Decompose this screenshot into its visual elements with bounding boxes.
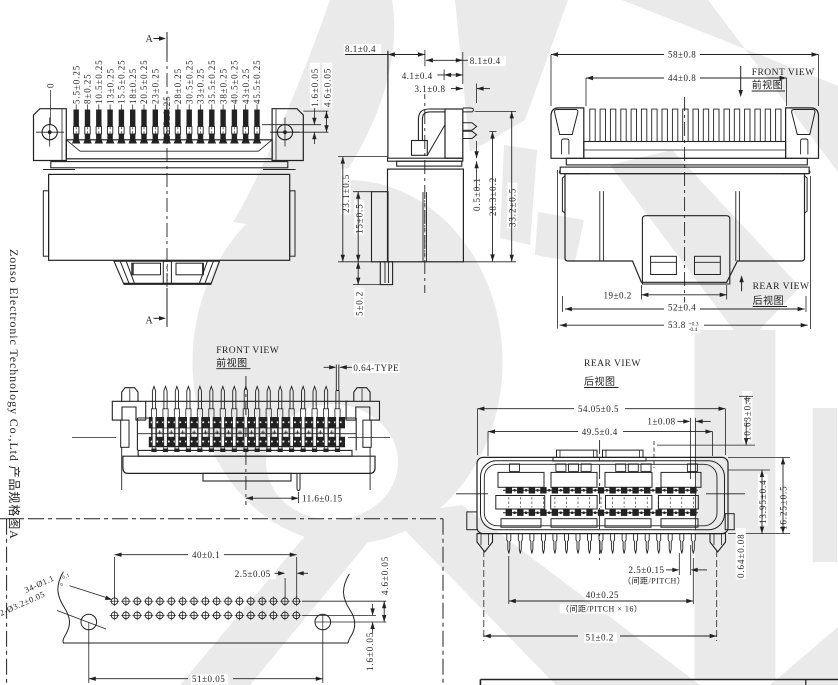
svg-text:40±0.1: 40±0.1 [192, 550, 220, 560]
svg-text:A: A [146, 316, 154, 327]
svg-text:43±0.25: 43±0.25 [241, 68, 251, 104]
svg-text:后视图: 后视图 [753, 294, 785, 307]
svg-text:16.25±0.5: 16.25±0.5 [779, 485, 789, 530]
svg-text:2.5±0.05: 2.5±0.05 [235, 569, 271, 579]
svg-text:35.5±0.25: 35.5±0.25 [207, 59, 217, 104]
svg-text:51±0.2: 51±0.2 [586, 633, 614, 643]
svg-text:前视图: 前视图 [752, 79, 784, 92]
svg-text:1±0.08: 1±0.08 [647, 417, 675, 427]
svg-text:28.3±0.2: 28.3±0.2 [488, 177, 498, 216]
svg-text:2.5±0.15: 2.5±0.15 [629, 565, 665, 575]
svg-text:4.6±0.05: 4.6±0.05 [323, 68, 333, 107]
svg-text:8.1±0.4: 8.1±0.4 [470, 56, 501, 66]
svg-text:13±0.25: 13±0.25 [105, 68, 115, 104]
svg-text:10.5±0.25: 10.5±0.25 [94, 59, 104, 104]
svg-text:Zonso Electronic Technology Co: Zonso Electronic Technology Co.,Ltd 产品规格… [7, 249, 22, 540]
svg-text:0.64±0.08: 0.64±0.08 [736, 533, 746, 578]
svg-text:25.5±0.25: 25.5±0.25 [162, 95, 172, 140]
svg-text:前视图: 前视图 [216, 356, 248, 369]
svg-text:54.05±0.5: 54.05±0.5 [578, 404, 619, 414]
svg-text:33±0.25: 33±0.25 [196, 68, 206, 104]
svg-text:A: A [146, 34, 154, 45]
svg-text:FRONT VIEW: FRONT VIEW [216, 346, 279, 356]
svg-text:（间距/PITCH × 16）: （间距/PITCH × 16） [561, 604, 642, 613]
svg-text:10.63±0.4: 10.63±0.4 [742, 396, 752, 441]
svg-text:5±0.2: 5±0.2 [355, 291, 365, 316]
svg-text:11.6±0.15: 11.6±0.15 [302, 494, 343, 504]
svg-text:28±0.25: 28±0.25 [173, 68, 183, 104]
svg-text:1.6±0.05: 1.6±0.05 [365, 632, 375, 671]
svg-text:-0.4: -0.4 [689, 327, 698, 333]
svg-text:20.5±0.25: 20.5±0.25 [139, 59, 149, 104]
svg-text:15±0.5: 15±0.5 [355, 203, 365, 234]
svg-text:40±0.25: 40±0.25 [586, 590, 619, 600]
svg-text:53.8: 53.8 [668, 320, 686, 330]
svg-text:REAR VIEW: REAR VIEW [584, 359, 641, 369]
svg-text:30.5±0.25: 30.5±0.25 [184, 59, 194, 104]
svg-text:18±0.25: 18±0.25 [128, 68, 138, 104]
svg-text:（间距/PITCH）: （间距/PITCH） [623, 576, 685, 585]
svg-text:44±0.8: 44±0.8 [668, 73, 696, 83]
svg-text:4.6±0.05: 4.6±0.05 [380, 556, 390, 595]
svg-text:23±0.25: 23±0.25 [151, 68, 161, 104]
svg-text:0.5±0.1: 0.5±0.1 [472, 177, 482, 211]
svg-text:0: 0 [46, 83, 56, 88]
svg-text:0.64-TYPE: 0.64-TYPE [353, 363, 399, 373]
svg-text:40.5±0.25: 40.5±0.25 [230, 59, 240, 104]
svg-text:8.1±0.4: 8.1±0.4 [345, 44, 376, 54]
svg-text:52±0.4: 52±0.4 [668, 303, 696, 313]
svg-text:15.5±0.25: 15.5±0.25 [117, 59, 127, 104]
svg-text:8±0.25: 8±0.25 [83, 73, 93, 104]
svg-text:38±0.25: 38±0.25 [218, 68, 228, 104]
svg-text:13.95±0.4: 13.95±0.4 [758, 479, 768, 524]
svg-text:5.5±0.25: 5.5±0.25 [71, 65, 81, 104]
svg-text:REAR VIEW: REAR VIEW [753, 282, 810, 292]
svg-text:19±0.2: 19±0.2 [604, 290, 632, 300]
svg-text:51±0.05: 51±0.05 [192, 674, 225, 684]
svg-text:45.5±0.25: 45.5±0.25 [252, 59, 262, 104]
svg-text:49.5±0.4: 49.5±0.4 [582, 427, 618, 437]
svg-text:33.2±0.5: 33.2±0.5 [508, 188, 518, 227]
svg-text:58±0.8: 58±0.8 [668, 50, 696, 60]
svg-text:3.1±0.8: 3.1±0.8 [415, 84, 446, 94]
svg-text:后视图: 后视图 [584, 375, 616, 388]
svg-text:4.1±0.4: 4.1±0.4 [402, 71, 433, 81]
svg-text:FRONT VIEW: FRONT VIEW [752, 68, 815, 78]
svg-text:1.6±0.05: 1.6±0.05 [310, 68, 320, 107]
